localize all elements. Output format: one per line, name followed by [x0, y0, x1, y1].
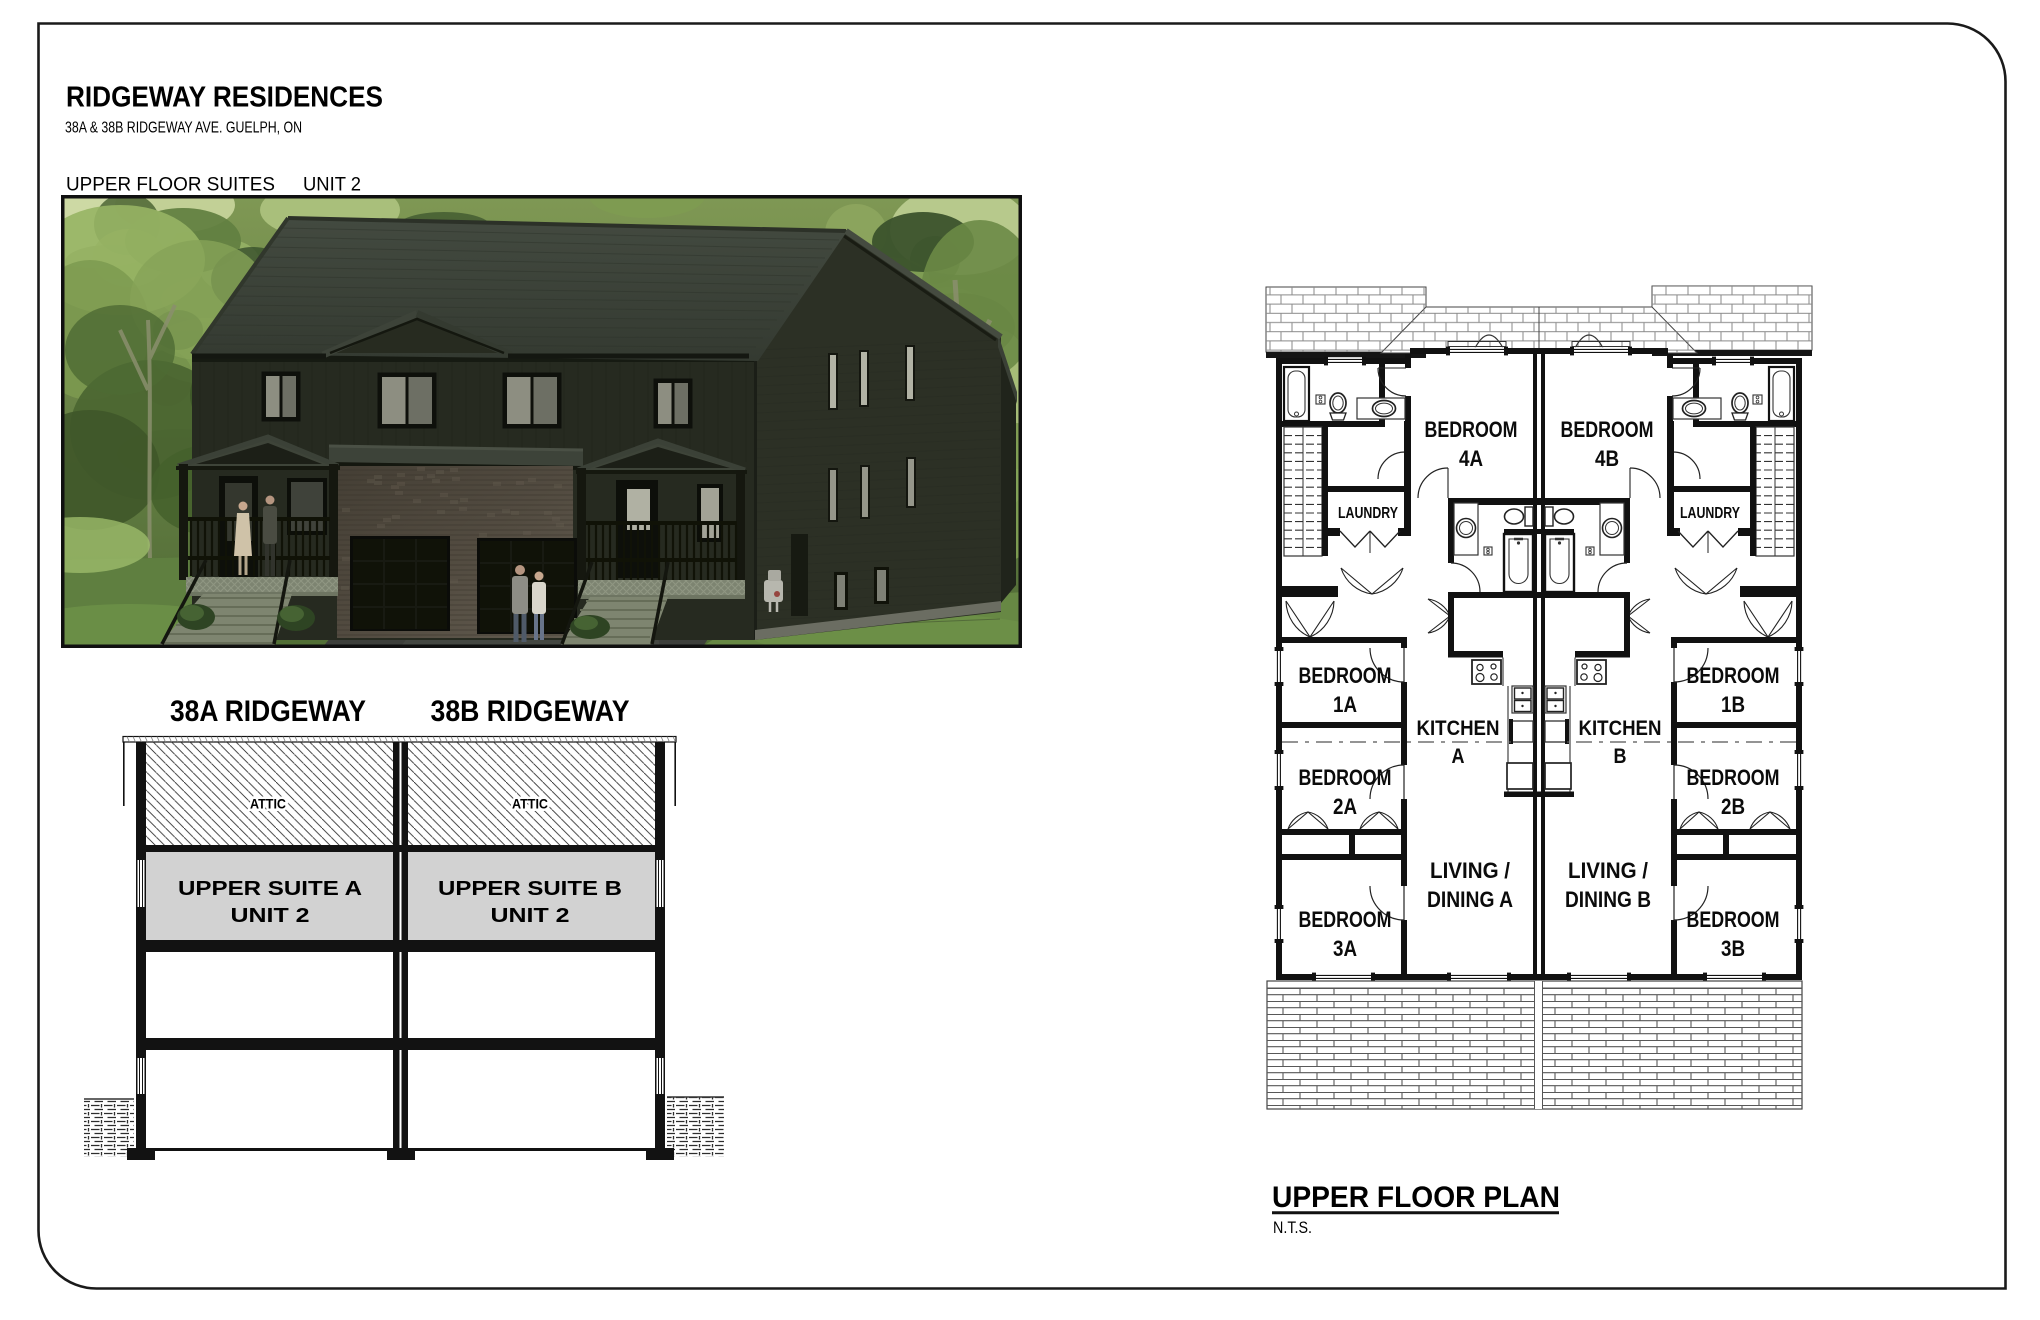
svg-text:1B: 1B — [1721, 692, 1745, 717]
svg-text:LIVING /: LIVING / — [1568, 858, 1648, 883]
svg-text:LIVING /: LIVING / — [1430, 858, 1510, 883]
svg-text:ATTIC: ATTIC — [512, 796, 548, 812]
svg-text:2B: 2B — [1721, 794, 1745, 819]
svg-text:KITCHEN: KITCHEN — [1417, 717, 1500, 740]
svg-text:UPPER SUITE B: UPPER SUITE B — [438, 877, 622, 900]
svg-text:UPPER SUITE A: UPPER SUITE A — [178, 877, 362, 900]
svg-text:UPPER FLOOR PLAN: UPPER FLOOR PLAN — [1272, 1181, 1560, 1214]
svg-text:38A & 38B RIDGEWAY AVE. GUELPH: 38A & 38B RIDGEWAY AVE. GUELPH, ON — [65, 120, 302, 137]
svg-text:DINING B: DINING B — [1565, 887, 1651, 912]
svg-text:3B: 3B — [1721, 936, 1745, 961]
svg-text:38A RIDGEWAY: 38A RIDGEWAY — [170, 695, 366, 728]
svg-text:BEDROOM: BEDROOM — [1687, 907, 1780, 932]
svg-text:38B RIDGEWAY: 38B RIDGEWAY — [431, 695, 630, 728]
svg-text:UPPER FLOOR SUITES: UPPER FLOOR SUITES — [66, 174, 275, 196]
svg-text:UNIT 2: UNIT 2 — [491, 904, 570, 927]
svg-text:BEDROOM: BEDROOM — [1687, 663, 1780, 688]
svg-text:4B: 4B — [1595, 446, 1619, 471]
svg-text:UNIT 2: UNIT 2 — [231, 904, 310, 927]
svg-text:1A: 1A — [1333, 692, 1357, 717]
svg-text:UNIT 2: UNIT 2 — [303, 174, 361, 196]
svg-text:BEDROOM: BEDROOM — [1425, 417, 1518, 442]
svg-text:DINING A: DINING A — [1427, 887, 1513, 912]
svg-text:ATTIC: ATTIC — [250, 796, 286, 812]
svg-text:3A: 3A — [1333, 936, 1357, 961]
svg-text:KITCHEN: KITCHEN — [1579, 717, 1662, 740]
svg-text:BEDROOM: BEDROOM — [1561, 417, 1654, 442]
svg-text:BEDROOM: BEDROOM — [1299, 663, 1392, 688]
svg-text:RIDGEWAY RESIDENCES: RIDGEWAY RESIDENCES — [66, 82, 383, 114]
svg-text:B: B — [1614, 745, 1627, 768]
svg-text:4A: 4A — [1459, 446, 1483, 471]
svg-text:LAUNDRY: LAUNDRY — [1338, 505, 1399, 522]
svg-text:N.T.S.: N.T.S. — [1273, 1219, 1312, 1237]
svg-text:BEDROOM: BEDROOM — [1299, 765, 1392, 790]
svg-text:BEDROOM: BEDROOM — [1687, 765, 1780, 790]
svg-text:LAUNDRY: LAUNDRY — [1680, 505, 1741, 522]
svg-text:2A: 2A — [1333, 794, 1357, 819]
svg-text:A: A — [1452, 745, 1465, 768]
svg-text:BEDROOM: BEDROOM — [1299, 907, 1392, 932]
